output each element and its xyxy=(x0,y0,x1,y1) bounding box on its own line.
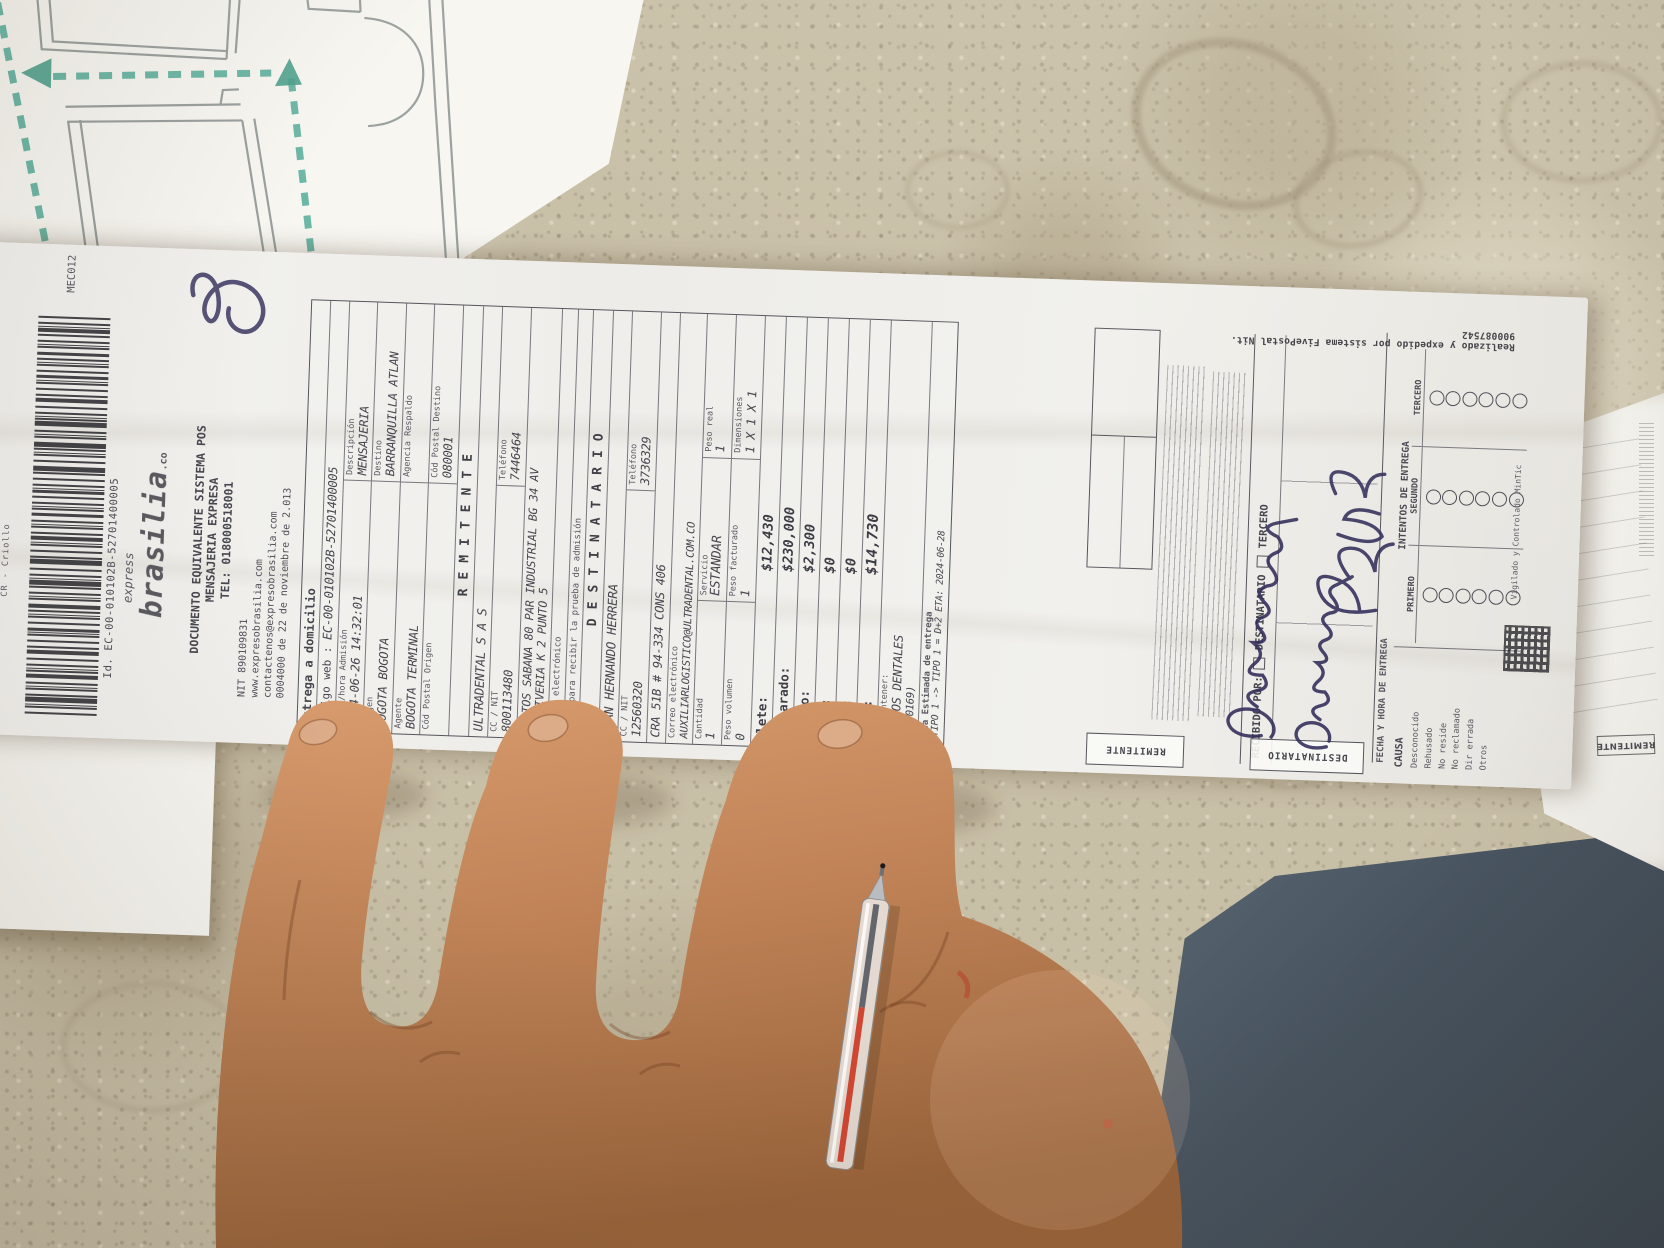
declarado-value: $230,000 xyxy=(780,507,798,573)
causa-item: No reside xyxy=(1438,653,1452,769)
brand-suffix: .co xyxy=(158,452,170,470)
otros-label: Otros: xyxy=(816,573,837,743)
remitente-tab: REMITENTE xyxy=(1085,733,1184,768)
attempt-circles-segundo xyxy=(1419,447,1527,549)
causa-item: Rehusado xyxy=(1424,652,1438,768)
attempt-circles-tercero xyxy=(1423,349,1531,451)
causa-item: Desconocido xyxy=(1411,652,1425,768)
pen-scribble-mark xyxy=(184,263,279,350)
brand-name: brasilia xyxy=(134,470,173,619)
corner-code: MEC012 xyxy=(65,255,78,293)
servicio-value: ESTANDAR xyxy=(710,463,730,596)
otros-value: $0 xyxy=(822,557,839,574)
flete-value: $12,430 xyxy=(759,514,777,571)
waybill-form: Entrega a domicilio Código web : EC-00-0… xyxy=(296,299,959,753)
qr-code xyxy=(1503,625,1551,673)
photo-scene: REMITENTE CR - Criollo MEC012 Id. EC-00-… xyxy=(0,0,1664,1248)
seguro-label: Seguro: xyxy=(795,572,816,742)
empty-boxes xyxy=(1086,328,1160,570)
copy-remitente-tab: REMITENTE xyxy=(1597,734,1656,756)
causa-item: Otros xyxy=(1479,654,1493,770)
total-value: $14,730 xyxy=(864,514,882,576)
total-label: Total: xyxy=(858,575,879,745)
stone-swirl xyxy=(1500,60,1664,184)
seguro-value: $2,300 xyxy=(801,524,819,573)
barcode xyxy=(25,314,111,716)
reexp-value: $0 xyxy=(843,558,860,575)
stone-swirl xyxy=(905,150,1010,230)
causa-item: Dir errada xyxy=(1466,654,1480,770)
codigo-web-label: Código web : xyxy=(318,646,334,726)
brand-logo: express brasilia.co xyxy=(120,397,176,619)
barcode-side-label: CR - Criollo xyxy=(1,523,13,597)
stone-swirl xyxy=(60,980,244,1114)
shipping-receipt: CR - Criollo MEC012 Id. EC-00-010102B-52… xyxy=(0,241,1588,790)
declarado-label: Declarado: xyxy=(774,572,795,742)
causa-item: No reclamado xyxy=(1452,653,1466,769)
flete-label: Flete: xyxy=(753,571,774,741)
barcode-number: Id. EC-00-010102B-52701400005 xyxy=(102,478,121,679)
reexp-label: Reexp: xyxy=(837,574,858,744)
copy-sheet-fineprint xyxy=(1639,421,1654,556)
